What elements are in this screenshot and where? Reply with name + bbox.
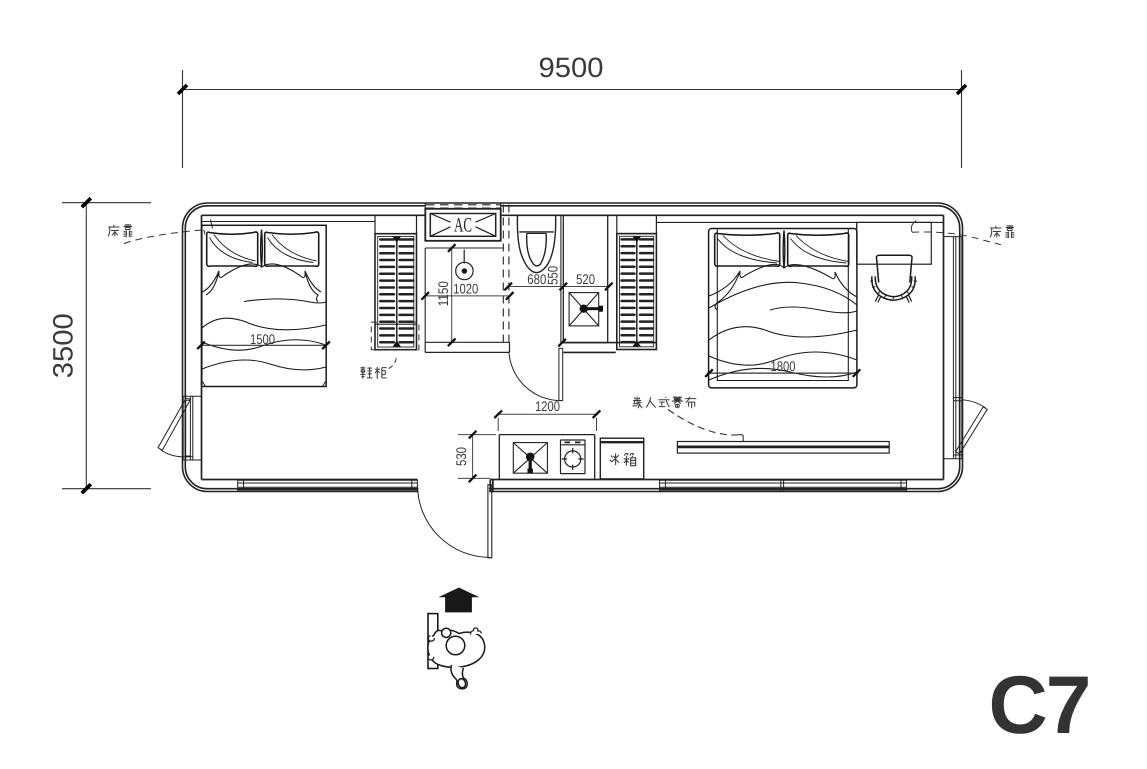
svg-text:3500: 3500: [48, 313, 79, 378]
svg-text:1150: 1150: [435, 281, 451, 306]
svg-text:1800: 1800: [771, 358, 796, 374]
svg-text:1020: 1020: [453, 281, 478, 297]
svg-text:C7: C7: [989, 660, 1090, 751]
svg-text:550: 550: [545, 266, 561, 285]
svg-text:530: 530: [453, 447, 469, 466]
svg-text:9500: 9500: [539, 52, 604, 83]
svg-text:1200: 1200: [535, 398, 560, 414]
svg-text:AC: AC: [454, 214, 472, 236]
svg-text:520: 520: [576, 271, 595, 287]
svg-text:1500: 1500: [250, 331, 275, 347]
